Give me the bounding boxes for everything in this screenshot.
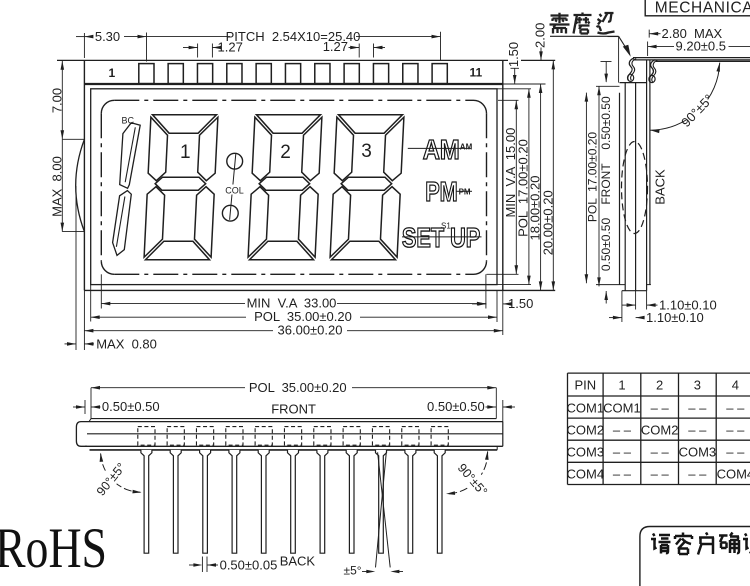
- svg-text:3: 3: [694, 377, 701, 392]
- svg-text:20.00±0.20: 20.00±0.20: [540, 190, 555, 255]
- svg-text:3: 3: [361, 141, 372, 162]
- svg-text:S1: S1: [441, 222, 451, 231]
- svg-text:MAX 8.00: MAX 8.00: [50, 156, 65, 217]
- svg-text:4: 4: [732, 377, 739, 392]
- svg-text:COM2: COM2: [567, 422, 605, 437]
- svg-text:1.27: 1.27: [218, 40, 243, 55]
- svg-text:PM: PM: [425, 176, 458, 207]
- svg-text:COM1: COM1: [567, 400, 605, 415]
- svg-text:BACK: BACK: [652, 169, 667, 205]
- svg-text:– –: – –: [651, 445, 670, 460]
- svg-text:FRONT: FRONT: [271, 401, 316, 416]
- svg-text:0.50±0.50: 0.50±0.50: [102, 399, 160, 414]
- svg-text:AM: AM: [460, 143, 473, 152]
- svg-text:BACK: BACK: [280, 554, 316, 569]
- svg-text:11: 11: [470, 66, 483, 80]
- svg-text:COM2: COM2: [641, 422, 679, 437]
- svg-text:0.50±0.05: 0.50±0.05: [220, 558, 278, 573]
- svg-text:0.50±0.50: 0.50±0.50: [427, 399, 485, 414]
- svg-text:2: 2: [280, 142, 291, 163]
- svg-text:9.20±0.5: 9.20±0.5: [676, 39, 727, 54]
- svg-text:1: 1: [618, 377, 625, 392]
- svg-text:COM4: COM4: [567, 467, 605, 482]
- svg-text:1.50: 1.50: [508, 296, 533, 311]
- svg-text:1: 1: [180, 142, 191, 163]
- svg-text:BC: BC: [122, 116, 135, 126]
- svg-text:– –: – –: [726, 400, 745, 415]
- svg-text:7.00: 7.00: [50, 88, 65, 113]
- svg-text:AM: AM: [423, 134, 460, 165]
- svg-text:– –: – –: [613, 422, 632, 437]
- svg-text:36.00±0.20: 36.00±0.20: [278, 323, 343, 338]
- svg-text:RoHS: RoHS: [0, 517, 107, 580]
- svg-text:POL 17.00±0.20: POL 17.00±0.20: [586, 132, 600, 223]
- svg-text:– –: – –: [613, 467, 632, 482]
- svg-text:2.00: 2.00: [532, 23, 547, 48]
- svg-text:COL: COL: [225, 185, 244, 195]
- svg-text:COM3: COM3: [679, 445, 717, 460]
- svg-text:– –: – –: [688, 400, 707, 415]
- svg-text:MECHANICAL DIMENSION: MECHANICAL DIMENSION: [655, 0, 750, 16]
- svg-text:POL 35.00±0.20: POL 35.00±0.20: [249, 380, 347, 395]
- svg-text:1.10±0.10: 1.10±0.10: [646, 310, 704, 325]
- svg-text:– –: – –: [651, 467, 670, 482]
- svg-text:2: 2: [656, 377, 663, 392]
- svg-text:MAX 0.80: MAX 0.80: [96, 336, 157, 351]
- svg-text:COM1: COM1: [603, 400, 641, 415]
- svg-text:1.50: 1.50: [506, 42, 521, 67]
- svg-text:– –: – –: [613, 445, 632, 460]
- svg-text:– –: – –: [726, 445, 745, 460]
- svg-text:5.30: 5.30: [95, 29, 120, 44]
- svg-text:FRONT: FRONT: [599, 163, 613, 205]
- svg-text:0.50±0.50: 0.50±0.50: [599, 218, 613, 272]
- svg-text:– –: – –: [688, 422, 707, 437]
- svg-text:1: 1: [109, 66, 116, 80]
- svg-text:1.27: 1.27: [323, 39, 348, 54]
- svg-text:±5°: ±5°: [344, 564, 362, 578]
- svg-text:COM4: COM4: [717, 467, 750, 482]
- svg-text:0.50±0.50: 0.50±0.50: [599, 96, 613, 150]
- svg-text:– –: – –: [651, 400, 670, 415]
- svg-text:– –: – –: [688, 467, 707, 482]
- svg-text:COM3: COM3: [567, 445, 605, 460]
- svg-text:PIN: PIN: [574, 377, 596, 392]
- svg-text:– –: – –: [726, 422, 745, 437]
- svg-text:PM: PM: [459, 188, 471, 197]
